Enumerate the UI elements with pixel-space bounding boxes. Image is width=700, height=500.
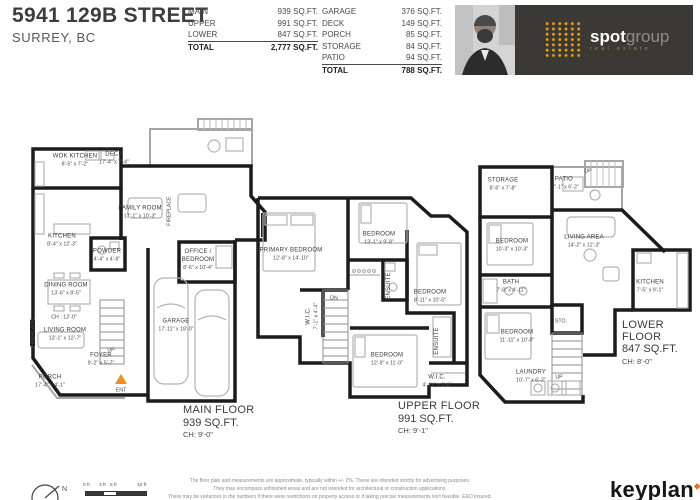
room-label-storage-small: STO. (555, 319, 567, 326)
room-label-wok-kitchen: WOK KITCHEN8'-5" x 7'-2" (53, 154, 98, 169)
row-label: STORAGE (322, 42, 361, 51)
room-label-ensuite: ENSUITE (386, 272, 394, 299)
entry-marker-icon (115, 374, 127, 384)
disclaimer-text: The floor plan and measurements are appr… (115, 478, 545, 500)
exterior-area-table: GARAGE376 SQ.FT. DECK149 SQ.FT. PORCH85 … (322, 6, 442, 76)
table-row: LOWER847 SQ.FT. (188, 29, 318, 41)
row-label: TOTAL (188, 43, 214, 52)
table-row: UPPER991 SQ.FT. (188, 18, 318, 30)
row-value: 2,777 SQ.FT. (271, 43, 318, 52)
scale-tick: 0 ft (83, 483, 90, 488)
property-address: 5941 129B STREET SURREY, BC (12, 4, 208, 45)
table-row: PORCH85 SQ.FT. (322, 29, 442, 41)
room-label-primary-bedroom: PRIMARY BEDROOM12'-8" x 14'-10" (260, 248, 323, 263)
brand-banner: spotgroup real estate (515, 5, 693, 75)
keyplan-logo: keyplan◆ (610, 477, 700, 500)
room-label-wic: W.I.C.4'-11" x 2'-6" (422, 375, 451, 390)
row-label: DECK (322, 19, 344, 28)
row-label: LOWER (188, 30, 217, 39)
room-label-bedroom: BEDROOM13'-1" x 9'-8" (363, 232, 395, 247)
room-label-foyer: FOYER9'-2" x 5'-7" (88, 353, 115, 368)
room-label-wic: W.I.C.7'-1" x 4'-4" (306, 303, 321, 330)
stairs-up-label: UP (584, 169, 591, 176)
ceiling-height-note: CH : 12'-0" (51, 315, 77, 322)
row-label: GARAGE (322, 7, 356, 16)
address-line2: SURREY, BC (12, 30, 208, 45)
table-row: GARAGE376 SQ.FT. (322, 6, 442, 18)
room-label-deck: DECK17'-4" x 7'-4" (99, 152, 129, 167)
scale-tick: 3 ft (99, 483, 106, 488)
room-label-office-bedroom: OFFICE / BEDROOM8'-6" x 10'-4" (178, 249, 218, 271)
main-floor-title: MAIN FLOOR 939 SQ.FT. CH: 9'-0" (183, 405, 254, 439)
brand-word-light: group (626, 27, 669, 46)
stairs-up-label: UP (107, 348, 114, 355)
room-label-kitchen: KITCHEN7'-5" x 9'-1" (636, 280, 664, 295)
floor-plan-sheet: 5941 129B STREET SURREY, BC MAIN939 SQ.F… (0, 0, 700, 500)
room-label-bedroom: BEDROOM11'-11" x 10'-0" (500, 330, 535, 345)
room-label-storage: STORAGE8'-6" x 7'-8" (488, 178, 519, 193)
row-value: 85 SQ.FT. (406, 30, 442, 39)
address-line1: 5941 129B STREET (12, 4, 208, 28)
room-label-ensuite: ENSUITE (434, 327, 442, 354)
row-value: 84 SQ.FT. (406, 42, 442, 51)
table-row: STORAGE84 SQ.FT. (322, 41, 442, 53)
keyplan-mark-icon: ◆ (694, 482, 700, 491)
table-row: DECK149 SQ.FT. (322, 18, 442, 30)
agent-photo (455, 5, 515, 75)
row-label: PATIO (322, 53, 345, 62)
interior-area-table: MAIN939 SQ.FT. UPPER991 SQ.FT. LOWER847 … (188, 6, 318, 53)
room-label-living-area: LIVING AREA14'-2" x 12'-3" (564, 235, 604, 250)
room-label-laundry: LAUNDRY10'-7" x 6'-2" (516, 370, 546, 385)
room-label-kitchen: KITCHEN8'-4" x 12'-3" (47, 234, 77, 249)
brand-word-bold: spot (590, 27, 626, 46)
brand-tagline: real estate (590, 47, 669, 53)
row-value: 376 SQ.FT. (402, 7, 442, 16)
entry-label: ENT (116, 388, 127, 395)
room-label-bedroom: BEDROOM12'-9" x 11'-0" (371, 353, 403, 368)
fireplace-label: FIREPLACE (167, 196, 174, 225)
room-label-dining-room: DINING ROOM13'-6" x 8'-5" (44, 283, 88, 298)
row-value: 149 SQ.FT. (402, 19, 442, 28)
table-row: PATIO94 SQ.FT. (322, 52, 442, 64)
table-total-row: TOTAL788 SQ.FT. (322, 64, 442, 77)
room-label-patio: PATIO17'-1" x 6'-2" (549, 177, 579, 192)
row-label: UPPER (188, 19, 216, 28)
north-label: N (62, 486, 67, 493)
row-value: 94 SQ.FT. (406, 53, 442, 62)
room-label-family-room: FAMILY ROOM17'-1" x 10'-3" (118, 206, 161, 221)
stairs-down-label: DN (330, 296, 338, 303)
row-value: 939 SQ.FT. (278, 7, 318, 16)
room-label-bedroom: BEDROOM8'-11" x 10'-5" (414, 290, 446, 305)
stairs-up-label: UP (555, 375, 562, 382)
row-label: MAIN (188, 7, 208, 16)
room-label-living-room: LIVING ROOM13'-1" x 12'-7" (44, 328, 86, 343)
row-value: 788 SQ.FT. (402, 66, 442, 75)
row-label: TOTAL (322, 66, 348, 75)
upper-floor-title: UPPER FLOOR 991 SQ.FT. CH: 9'-1" (398, 401, 480, 435)
table-total-row: TOTAL2,777 SQ.FT. (188, 41, 318, 54)
fireplace-label: FIREPLACE (31, 318, 38, 347)
room-label-bedroom: BEDROOM10'-3" x 10'-3" (496, 239, 529, 254)
room-label-garage: GARAGE17'-11" x 18'-0" (158, 319, 193, 334)
room-label-porch: PORCH17'-4" x 4'-1" (35, 375, 65, 390)
row-label: PORCH (322, 30, 351, 39)
room-label-bath: BATH7'-8" x 4'-11" (496, 280, 525, 295)
row-value: 991 SQ.FT. (278, 19, 318, 28)
row-value: 847 SQ.FT. (278, 30, 318, 39)
brand-text: spotgroup real estate (590, 28, 669, 53)
room-label-powder: POWDER4'-4" x 4'-8" (93, 249, 121, 264)
lower-floor-title: LOWER FLOOR 847 SQ.FT. CH: 8'-0" (622, 320, 700, 366)
table-row: MAIN939 SQ.FT. (188, 6, 318, 18)
spotgroup-dots-logo-icon (544, 21, 582, 58)
